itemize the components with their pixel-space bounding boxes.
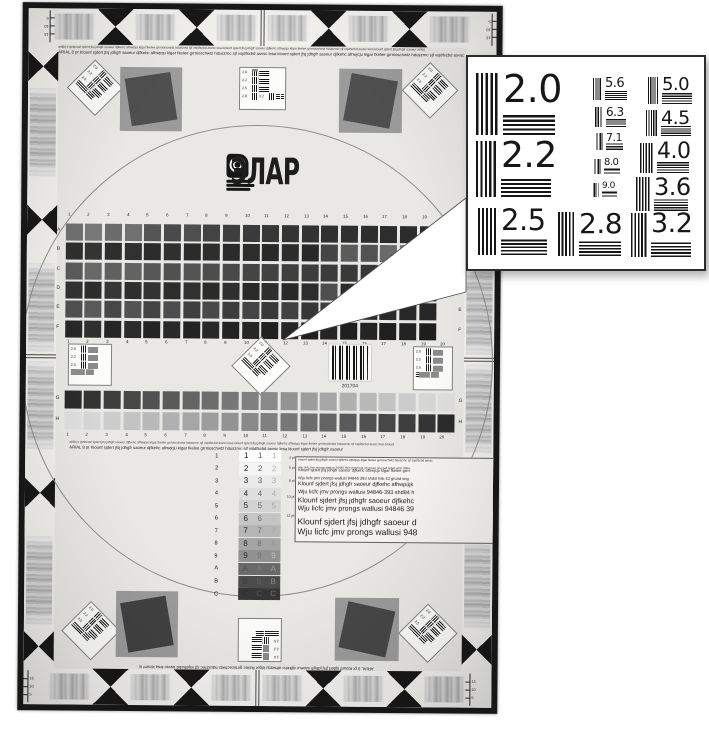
contrast-row: 3333 [215, 475, 285, 488]
contrast-strip: BBB [238, 575, 280, 587]
mini-horizontal-bars [265, 631, 279, 636]
horizontal-bars [606, 118, 626, 127]
resolution-pattern-2.2: 2.2 [476, 141, 557, 197]
bowtie-mark [308, 10, 349, 46]
logo-text: ЭЛАР [230, 150, 299, 193]
mini-horizontal-bars [252, 637, 262, 643]
gradient-patch [49, 673, 90, 699]
grid-square [301, 245, 318, 262]
border-strip-bottom: 1510515105 [23, 668, 491, 708]
grid-square [65, 281, 82, 298]
contrast-number: 3 [244, 477, 249, 485]
elar-logo: ЭЛАР [226, 148, 316, 197]
wedge-number: 9 [223, 434, 225, 438]
grid-square [399, 284, 416, 301]
contrast-number: 4 [272, 490, 277, 498]
mini-pattern-label: 2.0 [92, 64, 98, 70]
mini-pattern-label: 2.2 [274, 647, 279, 651]
grid-square [143, 321, 160, 338]
contrast-row-label: 7 [215, 528, 228, 534]
pattern-right-column: 3.2 [651, 213, 692, 257]
mini-pattern-label: 2.5 [416, 366, 421, 370]
grid-bottom-number: 13 [303, 341, 308, 345]
grid-square [144, 243, 161, 260]
resolution-pattern-5.0: 5.0 [648, 77, 692, 104]
rotated-inner-square [343, 73, 398, 129]
rotated-inner-square [125, 72, 178, 126]
mini-pattern-label: 2.8 [242, 95, 247, 99]
grid-square [164, 244, 181, 261]
grid-square [301, 264, 318, 281]
mini-pattern-label: 2.2 [252, 347, 258, 353]
contrast-row: 9999 [214, 550, 284, 563]
gray-step [339, 414, 356, 432]
resolution-minibox-mid-right: 2.02.22.5 [413, 346, 453, 390]
grid-square [301, 322, 318, 339]
contrast-number: 9 [243, 552, 248, 560]
resolution-diamond-bottom-right: 2.02.22.5 [398, 604, 457, 663]
ruler-tick-row: 5 [471, 19, 497, 25]
pt-size-label: 8 pt [287, 479, 295, 487]
grid-square [104, 262, 121, 279]
grid-square [321, 283, 338, 300]
mini-horizontal-bars [252, 653, 262, 659]
contrast-number: 1 [272, 452, 277, 460]
grid-square [419, 246, 436, 263]
barcode-bars [332, 346, 368, 380]
contrast-number: B [243, 577, 248, 585]
contrast-number: C [242, 590, 248, 598]
grid-square [340, 303, 357, 320]
wedge-number: 6 [164, 433, 166, 437]
vertical-bars [478, 208, 498, 255]
gradient-patch [130, 674, 171, 700]
wedge-number: 5 [145, 433, 147, 437]
pattern-right-column: 6.3 [606, 107, 626, 127]
wedge-number: 10 [243, 434, 248, 438]
mini-pattern-row: 2.5 [240, 637, 279, 644]
grid-top-number: 16 [363, 215, 368, 219]
gray-step [300, 392, 317, 410]
contrast-number: 3 [272, 477, 277, 485]
resolution-value: 2.0 [503, 73, 562, 105]
grid-square [65, 262, 82, 279]
contrast-row-label: 5 [215, 503, 228, 509]
grid-square [380, 245, 397, 262]
barcode [328, 344, 372, 382]
gradient-patch [136, 14, 177, 40]
resolution-value: 9.0 [602, 183, 617, 191]
horizontal-bars [602, 191, 617, 197]
mini-pattern-label: 2.2 [422, 72, 428, 78]
pattern-right-column: 7.1 [606, 133, 623, 150]
mini-vertical-bars [81, 354, 87, 361]
grid-top-number: 17 [382, 215, 387, 219]
mini-vertical-bars [252, 93, 258, 100]
mini-pattern-label: 2.2 [419, 614, 425, 620]
gradient-patch [212, 675, 253, 701]
grid-top-number: 18 [402, 215, 407, 219]
contrast-strip: CCC [238, 588, 280, 600]
grid-square [301, 283, 318, 300]
grid-square [84, 301, 101, 318]
grid-top-number: 13 [304, 214, 309, 218]
contrast-row: AAAA [214, 563, 284, 576]
mini-pattern-label: 2.5 [414, 620, 420, 626]
grid-square [124, 224, 141, 241]
mini-horizontal-bars [252, 645, 262, 651]
mini-pattern-row: 2.0 [242, 69, 284, 76]
grid-square [65, 320, 82, 337]
grid-square [242, 244, 259, 261]
gray-step [202, 413, 219, 431]
contrast-row-label: 9 [214, 553, 227, 559]
mini-vertical-bars [81, 362, 87, 369]
contrast-strip: 222 [239, 462, 281, 474]
contrast-number: 8 [243, 540, 248, 548]
ruler-line [49, 10, 50, 42]
resolution-pattern-5.6: 5.6 [593, 78, 627, 100]
mini-pattern-row: 2.0 [71, 346, 110, 353]
grid-top-number: 1 [68, 212, 70, 216]
gray-step [438, 414, 455, 432]
wedge-number: 8 [204, 434, 206, 438]
type-sample-box: Klounf sjdert jfsj jdhgfr saoeur djfkehc… [294, 456, 502, 545]
grid-bottom-number: 6 [165, 340, 167, 344]
gray-step [359, 414, 376, 432]
contrast-strip: 666 [239, 513, 281, 525]
grid-square [360, 264, 377, 281]
contrast-number: C [256, 590, 262, 598]
ruler-tick-row: 15 [29, 31, 55, 37]
ruler-number: 10 [44, 24, 48, 28]
gray-step [84, 412, 101, 430]
vertical-bars [558, 212, 576, 256]
wedge-letter-left: G [56, 395, 60, 400]
mini-horizontal-bars [276, 94, 280, 99]
gradient-patch [262, 675, 303, 701]
grid-square [104, 282, 121, 299]
type-sample-line: Klounf sjdert jfsj jdhgfr saoeur djfkehc… [298, 458, 503, 464]
vertical-bars [476, 141, 498, 197]
bowtie-mark [176, 9, 217, 45]
gray-step [418, 393, 435, 411]
mini-pattern-label: 2.5 [274, 639, 279, 643]
resolution-value: 6.3 [606, 107, 626, 117]
grid-top-number: 9 [225, 214, 227, 218]
contrast-strip: AAA [238, 563, 280, 575]
corner-ruler: 15105 [23, 668, 49, 704]
grid-top-number: 12 [284, 214, 289, 218]
contrast-number: 6 [271, 515, 276, 523]
grid-square [281, 322, 298, 339]
contrast-row-label: B [214, 578, 227, 584]
grid-square [399, 303, 416, 320]
pattern-right-column: 2.5 [501, 208, 547, 255]
resolution-pattern-4.0: 4.0 [640, 143, 691, 173]
resolution-value: 4.5 [661, 110, 691, 126]
grid-top-number: 14 [323, 214, 328, 218]
grid-square [419, 265, 436, 282]
mini-pattern-label: 2.2 [71, 355, 76, 359]
grid-square [85, 224, 102, 241]
ruler-number: 5 [46, 16, 48, 20]
grid-top-number: 3 [107, 213, 109, 217]
bowtie-mark [90, 669, 131, 705]
header-microtext-line2: ARIAL 8 pt Klounf sjdert jfsj jdhgfr sao… [58, 50, 464, 57]
type-size-block: 4 pt6 pt8 pt10 pt12 pt Klounf sjdert jfs… [287, 456, 458, 543]
contrast-strip: 999 [238, 550, 280, 562]
contrast-row-label: 6 [215, 516, 228, 522]
grid-square [164, 224, 181, 241]
grid-square [262, 302, 279, 319]
grid-row-letter-right: F [458, 327, 461, 332]
grid-square [321, 225, 338, 242]
pt-size-label: 10 pt [287, 495, 295, 505]
vertical-bars [648, 77, 659, 104]
mini-horizontal-bars [88, 362, 98, 368]
grid-square [65, 223, 82, 240]
mini-pattern-label: 3.2 [259, 95, 264, 99]
gray-step [261, 413, 278, 431]
ruler-tick-row: 10 [470, 27, 496, 33]
resolution-minibox-bottom-center: 2.02.22.5 [238, 618, 282, 662]
wedge-number: 3 [105, 433, 107, 437]
horizontal-bars [606, 142, 623, 150]
resolution-value: 8.0 [604, 159, 620, 168]
corner-ruler: 15105 [28, 8, 54, 44]
contrast-number: 9 [271, 552, 276, 560]
gray-square-bottom-left [116, 591, 179, 657]
mini-pattern-label: 2.5 [242, 87, 247, 91]
vertical-bars [595, 107, 603, 127]
grid-square [163, 321, 180, 338]
grid-bottom-number: 18 [401, 342, 406, 346]
gray-step [222, 392, 239, 410]
rotated-inner-square [338, 601, 395, 657]
contrast-number: A [271, 565, 276, 573]
grid-square [242, 302, 259, 319]
gradient-patch [430, 16, 471, 42]
grid-square [281, 302, 298, 319]
mini-pattern-row: 2.5 [242, 85, 284, 92]
mini-pattern-label: 2.0 [274, 655, 279, 659]
grid-top-number: 2 [87, 213, 89, 217]
grid-square [222, 321, 239, 338]
ruler-number: 5 [471, 696, 473, 700]
resolution-pattern-2.5: 2.5 [478, 208, 547, 255]
mini-vertical-bars [252, 77, 258, 84]
mini-pattern-row [416, 372, 451, 377]
corner-triangle [24, 624, 54, 668]
type-sample-line: Wju licfc jmv prongs wallusi 948 [297, 526, 502, 538]
vertical-bars [640, 143, 654, 173]
gray-step [221, 413, 238, 431]
gray-step [182, 412, 199, 430]
pattern-right-column: 3.6 [654, 177, 691, 211]
ruler-number: 10 [471, 688, 475, 692]
mini-vertical-bars [263, 645, 269, 652]
grid-bottom-number: 14 [322, 341, 327, 345]
wedge-number: 19 [420, 435, 425, 439]
gradient-patch [26, 537, 53, 625]
horizontal-bars [604, 168, 620, 175]
grid-square [262, 264, 279, 281]
gray-step [103, 412, 120, 430]
grid-square [65, 243, 82, 260]
grid-square [243, 225, 260, 242]
contrast-number: 5 [272, 502, 277, 510]
resolution-value: 3.6 [654, 177, 691, 197]
mini-pattern-label: 2.2 [87, 70, 93, 76]
mini-pattern-label: 2.5 [416, 78, 422, 84]
resolution-value: 2.5 [501, 208, 547, 233]
contrast-row-label: 2 [215, 465, 228, 471]
grid-square [380, 265, 397, 282]
bowtie-mark [171, 669, 212, 705]
grid-square [85, 282, 102, 299]
pattern-right-column: 4.5 [661, 110, 691, 136]
bowtie-mark [389, 11, 430, 47]
pattern-right-column: 2.2 [501, 141, 557, 197]
wedge-number: 7 [184, 433, 186, 437]
contrast-number: A [257, 565, 262, 573]
resolution-diamond-top-right: 2.02.22.5 [402, 62, 459, 119]
grid-row-letter-left: B [57, 247, 60, 252]
gray-step [64, 390, 81, 408]
contrast-number: 6 [257, 515, 262, 523]
mini-pattern-label: 2.0 [427, 67, 433, 73]
vertical-bars [593, 78, 602, 100]
mini-horizontal-bars [433, 365, 443, 371]
gray-step [182, 391, 199, 409]
wedge-letter-right: G [459, 399, 463, 404]
grid-square [104, 320, 121, 337]
mini-horizontal-bars [71, 370, 85, 375]
horizontal-bars [662, 92, 692, 104]
contrast-row-label: 8 [215, 541, 228, 547]
contrast-strip: 444 [239, 487, 281, 499]
grid-square [223, 263, 240, 280]
grid-square [380, 322, 397, 339]
resolution-diamond-bottom-left: 2.02.22.5 [61, 601, 120, 660]
grid-square [321, 264, 338, 281]
grid-square [203, 302, 220, 319]
segment-split [257, 10, 267, 46]
gradient-patch [217, 15, 258, 41]
resolution-value: 2.2 [501, 141, 557, 172]
wedge-number: 14 [322, 434, 327, 438]
grid-square [144, 301, 161, 318]
contrast-number: 5 [258, 502, 263, 510]
gray-square-top-right [339, 69, 403, 133]
contrast-number: C [270, 590, 276, 598]
gray-step [438, 393, 455, 411]
gray-step [143, 412, 160, 430]
grid-square [340, 322, 357, 339]
grid-square [203, 263, 220, 280]
ruler-number: 15 [44, 32, 48, 36]
ruler-number: 15 [486, 36, 490, 40]
resolution-value: 2.8 [579, 212, 622, 236]
corner-triangle [462, 628, 492, 672]
grid-row-letter-right: C [459, 269, 462, 274]
wedge-number: 12 [282, 434, 287, 438]
gray-step [379, 393, 396, 411]
test-chart-scan: 1510515105 1510515105 whlbj s jprtkcuvl … [0, 0, 709, 731]
mini-horizontal-bars [256, 631, 264, 636]
mini-pattern-label: 2.5 [247, 352, 253, 358]
resolution-pattern-2.8: 2.8 [558, 212, 622, 256]
grid-row-letter-left: E [56, 305, 59, 310]
grid-row-letter-left: F [56, 324, 59, 329]
grid-bottom-number: 8 [204, 341, 206, 345]
mini-horizontal-bars [259, 85, 269, 91]
mini-pattern-row: 2.2 [71, 354, 110, 361]
mini-vertical-bars [81, 346, 87, 353]
horizontal-bars [661, 126, 691, 136]
grid-top-number: 5 [146, 213, 148, 217]
grid-square [183, 244, 200, 261]
vertical-bars [596, 133, 603, 150]
mini-pattern-label: 2.2 [242, 79, 247, 83]
contrast-row: 6666 [215, 512, 285, 525]
grid-square [85, 262, 102, 279]
bowtie-mark [95, 9, 136, 45]
mini-horizontal-bars [416, 372, 430, 377]
grid-square [242, 321, 259, 338]
mini-horizontal-bars [281, 94, 284, 99]
grid-bottom-number: 4 [126, 340, 128, 344]
contrast-row-label: 4 [215, 490, 228, 496]
mini-pattern-label: 2.2 [82, 611, 88, 617]
grid-square [183, 224, 200, 241]
pattern-right-column: 8.0 [604, 159, 620, 174]
ruler-line [27, 670, 28, 702]
contrast-number: 2 [258, 465, 263, 473]
grid-square [400, 265, 417, 282]
wedge-number: 11 [263, 434, 268, 438]
mini-pattern-row: 2.0 [240, 653, 279, 660]
mini-horizontal-bars [88, 346, 98, 352]
grid-square [320, 322, 337, 339]
vertical-bars [631, 213, 648, 257]
mini-pattern-label: 2.0 [71, 347, 76, 351]
grid-row-letter-left: A [57, 227, 60, 232]
grid-square [144, 224, 161, 241]
gray-step [241, 413, 258, 431]
resolution-minibox-top-center: 2.02.22.52.83.2 [239, 67, 286, 110]
wedge-number: 4 [125, 433, 127, 437]
contrast-row: 5555 [215, 500, 285, 513]
ruler-tick-row: 5 [29, 15, 55, 21]
contrast-number: 6 [243, 515, 248, 523]
grid-square [360, 322, 377, 339]
wedge-letter-right: H [458, 420, 462, 425]
grid-square [104, 301, 121, 318]
grid-square [105, 224, 122, 241]
contrast-strip: 111 [239, 450, 281, 462]
resolution-pattern-3.2: 3.2 [631, 213, 692, 257]
ruler-number: 5 [29, 692, 31, 696]
contrast-row: 2222 [215, 462, 285, 475]
segment-split [252, 670, 262, 706]
contrast-strip: 888 [238, 538, 280, 550]
grid-square [380, 226, 397, 243]
grid-row-letter-right: D [459, 288, 462, 293]
grid-square [223, 244, 240, 261]
grid-square [419, 323, 436, 340]
